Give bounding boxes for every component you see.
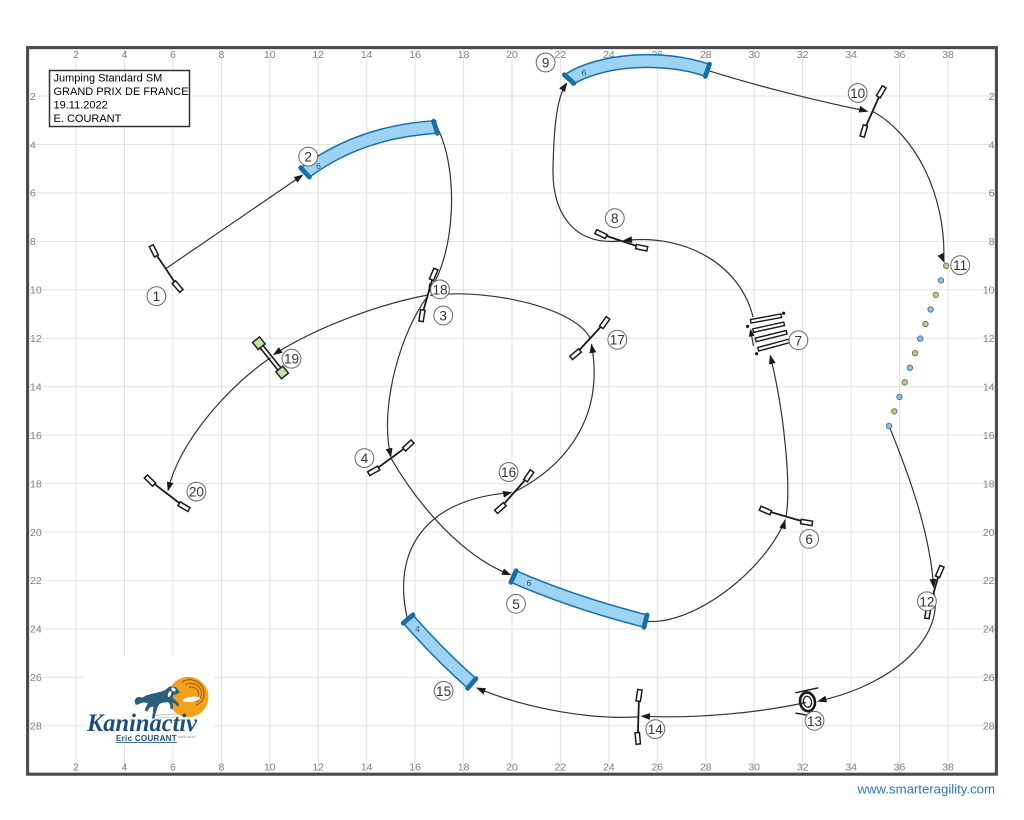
svg-text:9: 9	[542, 56, 550, 71]
svg-text:22: 22	[983, 575, 995, 587]
svg-text:14: 14	[983, 382, 995, 394]
svg-text:36: 36	[894, 49, 906, 61]
svg-text:E. COURANT: E. COURANT	[54, 113, 122, 125]
svg-text:30: 30	[748, 49, 760, 61]
svg-text:3: 3	[439, 309, 447, 324]
svg-text:17: 17	[610, 333, 625, 348]
svg-text:www.smarteragility.com: www.smarteragility.com	[856, 782, 995, 797]
svg-text:6: 6	[582, 68, 587, 78]
svg-text:Eric COURANT: Eric COURANT	[116, 734, 177, 743]
svg-text:28: 28	[700, 49, 712, 61]
svg-text:12: 12	[312, 49, 324, 61]
svg-text:28: 28	[30, 721, 42, 733]
svg-text:36: 36	[894, 762, 906, 774]
svg-text:4: 4	[122, 762, 128, 774]
svg-text:4: 4	[361, 451, 369, 466]
svg-text:16: 16	[30, 430, 42, 442]
svg-text:Jumping Standard SM: Jumping Standard SM	[54, 73, 163, 85]
svg-text:10: 10	[30, 285, 42, 297]
svg-text:24: 24	[983, 624, 995, 636]
svg-text:20: 20	[506, 49, 518, 61]
svg-text:26: 26	[983, 672, 995, 684]
svg-text:18: 18	[458, 762, 470, 774]
svg-text:6: 6	[527, 578, 532, 588]
svg-text:GRAND PRIX DE FRANCE: GRAND PRIX DE FRANCE	[54, 86, 189, 98]
svg-text:10: 10	[264, 762, 276, 774]
svg-text:18: 18	[432, 282, 447, 297]
svg-text:16: 16	[409, 762, 421, 774]
svg-text:20: 20	[506, 762, 518, 774]
svg-text:1: 1	[153, 289, 161, 304]
svg-text:18: 18	[983, 478, 995, 490]
svg-text:22: 22	[555, 762, 567, 774]
svg-text:6: 6	[170, 762, 176, 774]
svg-text:34: 34	[845, 49, 857, 61]
svg-text:12: 12	[919, 594, 934, 609]
svg-text:4: 4	[122, 49, 128, 61]
svg-text:2: 2	[73, 49, 79, 61]
svg-text:10: 10	[983, 285, 995, 297]
svg-text:20: 20	[189, 485, 205, 500]
svg-text:24: 24	[603, 762, 615, 774]
svg-text:8: 8	[218, 49, 224, 61]
svg-text:7: 7	[795, 333, 803, 348]
svg-text:14: 14	[361, 49, 373, 61]
svg-text:8: 8	[989, 236, 995, 248]
svg-text:16: 16	[409, 49, 421, 61]
svg-text:10: 10	[850, 86, 866, 101]
svg-text:19: 19	[284, 352, 299, 367]
svg-text:14: 14	[648, 722, 664, 737]
svg-text:22: 22	[555, 49, 567, 61]
svg-text:13: 13	[807, 714, 822, 729]
svg-text:11: 11	[953, 258, 967, 273]
svg-text:4: 4	[30, 139, 36, 151]
svg-text:4: 4	[415, 624, 420, 634]
svg-text:32: 32	[797, 762, 809, 774]
svg-text:8: 8	[30, 236, 36, 248]
svg-text:8: 8	[218, 762, 224, 774]
svg-text:2: 2	[304, 150, 312, 165]
svg-text:6: 6	[989, 188, 995, 200]
svg-text:8: 8	[611, 211, 619, 226]
svg-text:18: 18	[30, 478, 42, 490]
svg-text:30: 30	[748, 762, 760, 774]
svg-text:5: 5	[512, 597, 520, 612]
svg-text:15: 15	[436, 684, 451, 699]
svg-text:32: 32	[797, 49, 809, 61]
svg-text:38: 38	[942, 762, 954, 774]
svg-text:20: 20	[983, 527, 995, 539]
svg-text:6: 6	[30, 188, 36, 200]
svg-text:28: 28	[700, 762, 712, 774]
svg-text:22: 22	[30, 575, 42, 587]
svg-text:14: 14	[361, 762, 373, 774]
svg-text:12: 12	[30, 333, 42, 345]
svg-text:24: 24	[30, 624, 42, 636]
svg-text:14: 14	[30, 382, 42, 394]
svg-text:Kaninactiv: Kaninactiv	[86, 710, 198, 737]
svg-text:34: 34	[845, 762, 857, 774]
svg-text:10: 10	[264, 49, 276, 61]
svg-text:16: 16	[983, 430, 995, 442]
svg-text:26: 26	[651, 762, 663, 774]
svg-text:12: 12	[983, 333, 995, 345]
svg-text:6: 6	[170, 49, 176, 61]
svg-text:18: 18	[458, 49, 470, 61]
svg-text:6: 6	[805, 532, 813, 547]
svg-text:38: 38	[942, 49, 954, 61]
svg-text:28: 28	[983, 721, 995, 733]
svg-text:2: 2	[73, 762, 79, 774]
svg-text:kaninactiv: kaninactiv	[178, 734, 196, 739]
svg-text:19.11.2022: 19.11.2022	[54, 100, 108, 112]
svg-text:4: 4	[989, 139, 995, 151]
svg-text:26: 26	[30, 672, 42, 684]
svg-text:2: 2	[30, 91, 36, 103]
svg-text:16: 16	[501, 465, 516, 480]
svg-text:20: 20	[30, 527, 42, 539]
svg-text:12: 12	[312, 762, 324, 774]
svg-text:6: 6	[316, 161, 321, 171]
svg-text:2: 2	[989, 91, 995, 103]
